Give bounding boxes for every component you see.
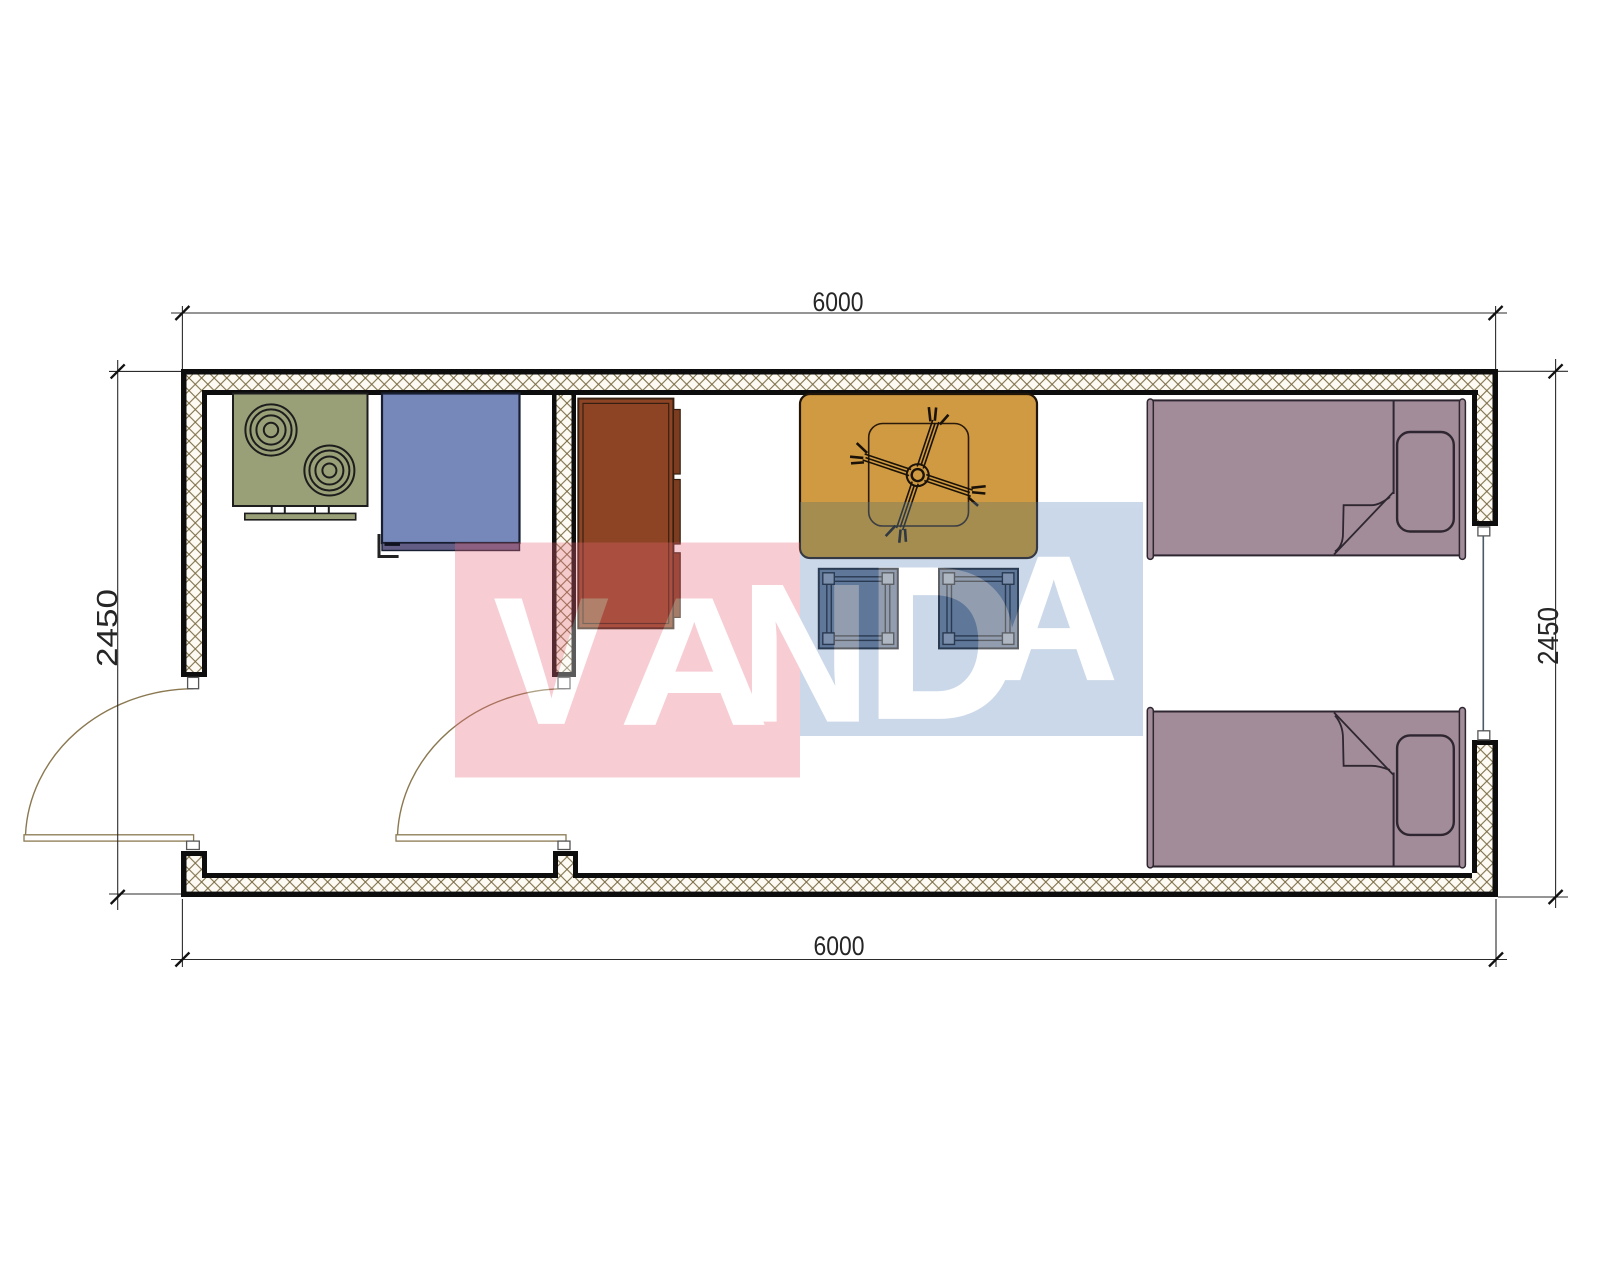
svg-text:2450: 2450 bbox=[92, 589, 124, 667]
svg-text:A: A bbox=[990, 520, 1118, 718]
svg-text:N: N bbox=[741, 543, 870, 762]
svg-text:6000: 6000 bbox=[813, 287, 864, 317]
svg-text:6000: 6000 bbox=[814, 931, 865, 961]
svg-text:V: V bbox=[494, 561, 608, 762]
svg-text:2450: 2450 bbox=[1533, 607, 1565, 665]
